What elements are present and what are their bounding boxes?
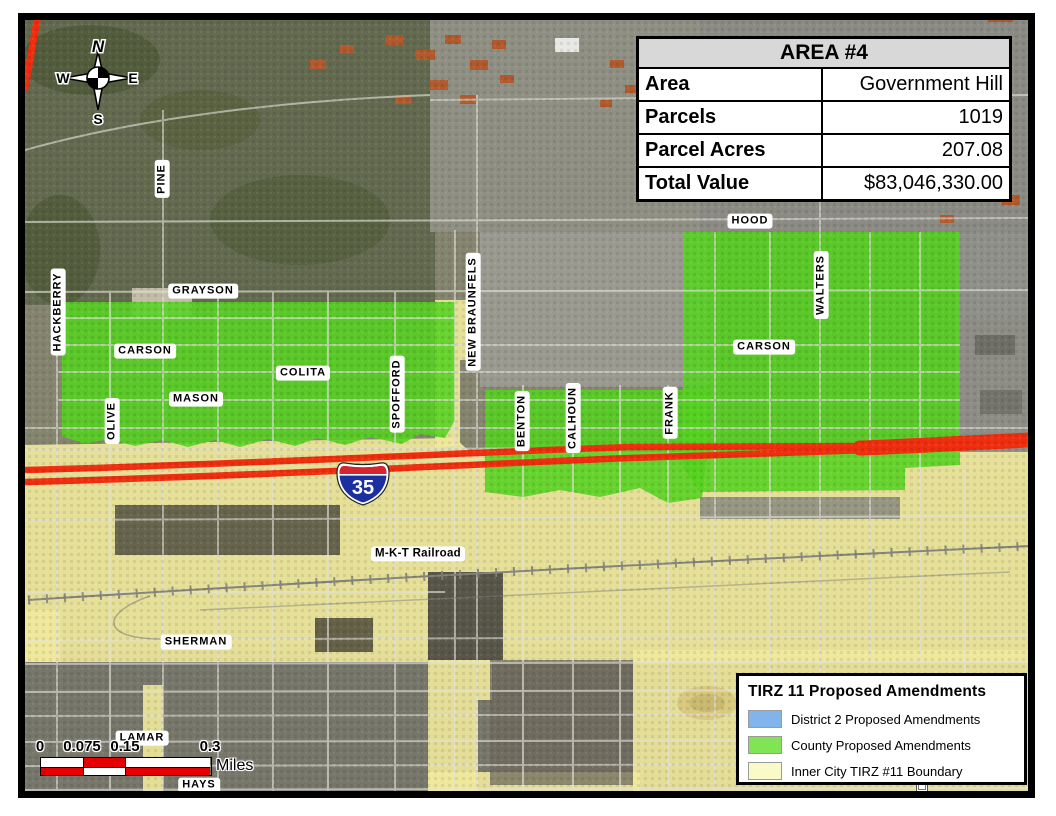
street-label-calhoun: CALHOUN (566, 383, 581, 453)
legend-item-label: Inner City TIRZ #11 Boundary (791, 764, 963, 779)
scale-tick-1: 0.075 (63, 738, 101, 755)
row-value-area: Government Hill (823, 69, 1009, 100)
street-label-colita: COLITA (276, 366, 330, 381)
row-value-total-value: $83,046,330.00 (823, 168, 1009, 199)
compass-south-label: S (93, 111, 102, 127)
scale-unit: Miles (216, 757, 253, 775)
legend-item: County Proposed Amendments (748, 736, 971, 754)
scale-bar: 0 0.075 0.15 0.3 Miles (25, 730, 295, 785)
street-label-new-braunfels: NEW BRAUNFELS (466, 253, 481, 371)
route-number: 35 (352, 477, 374, 499)
scale-bar-segments (40, 757, 212, 776)
street-label-pine: PINE (155, 160, 170, 198)
row-label-total-value: Total Value (639, 168, 823, 199)
row-label-parcel-acres: Parcel Acres (639, 135, 823, 166)
street-label-spofford: SPOFFORD (390, 355, 405, 432)
street-label-carson-east: CARSON (733, 340, 795, 355)
i35-shield: 35 (334, 455, 392, 507)
street-label-olive: OLIVE (105, 398, 120, 444)
compass-west-label: W (56, 70, 70, 86)
table-row: Area Government Hill (639, 69, 1009, 102)
street-label-grayson: GRAYSON (168, 284, 238, 299)
row-label-area: Area (639, 69, 823, 100)
legend: TIRZ 11 Proposed Amendments District 2 P… (736, 673, 1027, 785)
street-label-frank: FRANK (663, 387, 678, 439)
street-label-walters: WALTERS (814, 251, 829, 319)
street-label-mkt-railroad: M-K-T Railroad (371, 546, 465, 561)
compass-east-label: E (128, 70, 137, 86)
tirz-boundary-swatch (748, 762, 782, 780)
scale-tick-0: 0 (36, 738, 44, 755)
street-label-hood: HOOD (728, 214, 773, 229)
street-label-sherman: SHERMAN (161, 635, 232, 650)
legend-item: Inner City TIRZ #11 Boundary (748, 762, 963, 780)
street-label-carson-west: CARSON (114, 344, 176, 359)
legend-item-label: County Proposed Amendments (791, 738, 971, 753)
table-row: Total Value $83,046,330.00 (639, 168, 1009, 199)
table-row: Parcel Acres 207.08 (639, 135, 1009, 168)
legend-item-label: District 2 Proposed Amendments (791, 712, 980, 727)
row-value-parcel-acres: 207.08 (823, 135, 1009, 166)
scale-tick-2: 0.15 (110, 738, 139, 755)
legend-item: District 2 Proposed Amendments (748, 710, 980, 728)
info-table-title: AREA #4 (639, 39, 1009, 69)
compass-north-label: N (92, 38, 105, 56)
scale-tick-3: 0.3 (200, 738, 221, 755)
compass-rose: N W E S (53, 38, 143, 133)
legend-title: TIRZ 11 Proposed Amendments (748, 683, 1024, 701)
row-value-parcels: 1019 (823, 102, 1009, 133)
table-row: Parcels 1019 (639, 102, 1009, 135)
map-frame: N W E S 35 PINE HACKBERRY GRAYSON CARSON… (18, 13, 1035, 798)
district2-swatch (748, 710, 782, 728)
info-table: AREA #4 Area Government Hill Parcels 101… (636, 36, 1012, 202)
street-label-mason: MASON (169, 392, 223, 407)
street-label-hackberry: HACKBERRY (51, 269, 66, 356)
street-label-benton: BENTON (515, 391, 530, 451)
row-label-parcels: Parcels (639, 102, 823, 133)
county-swatch (748, 736, 782, 754)
